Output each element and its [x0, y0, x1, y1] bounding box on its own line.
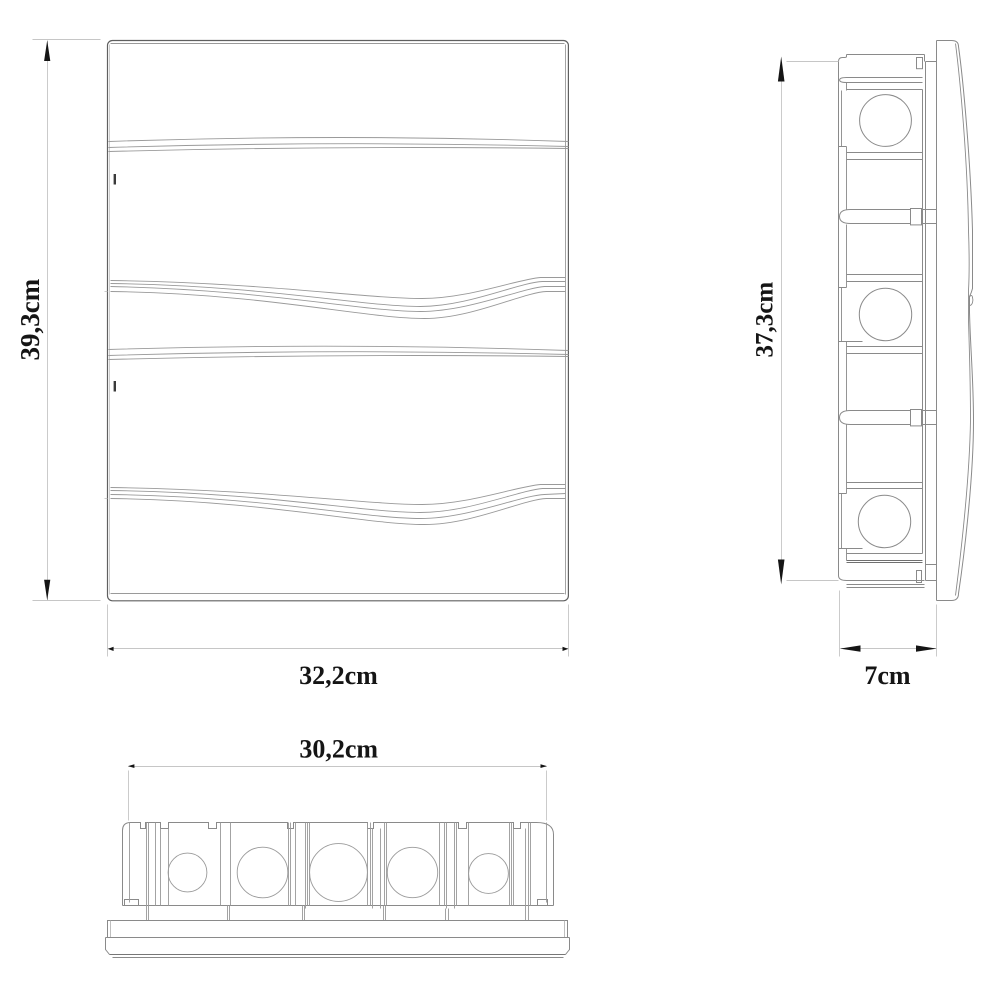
svg-text:7cm: 7cm	[864, 661, 911, 690]
svg-text:32,2cm: 32,2cm	[299, 661, 378, 690]
svg-text:30,2cm: 30,2cm	[299, 735, 378, 764]
svg-text:39,3cm: 39,3cm	[15, 278, 45, 360]
svg-text:37,3cm: 37,3cm	[751, 282, 778, 358]
